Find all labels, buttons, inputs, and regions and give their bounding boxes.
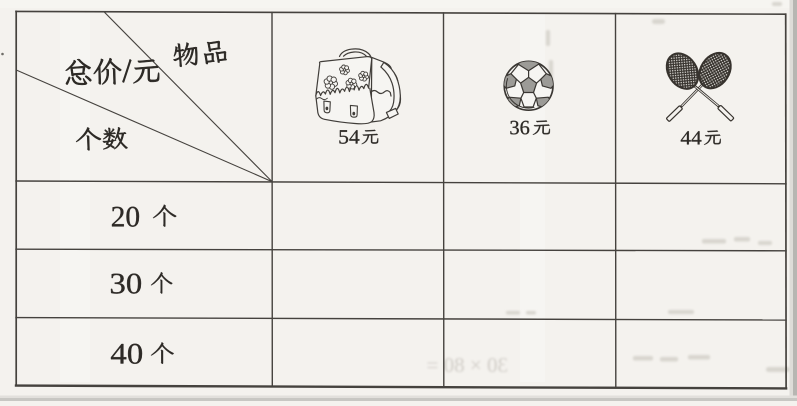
svg-text:30 × 80 =: 30 × 80 = (427, 353, 508, 377)
